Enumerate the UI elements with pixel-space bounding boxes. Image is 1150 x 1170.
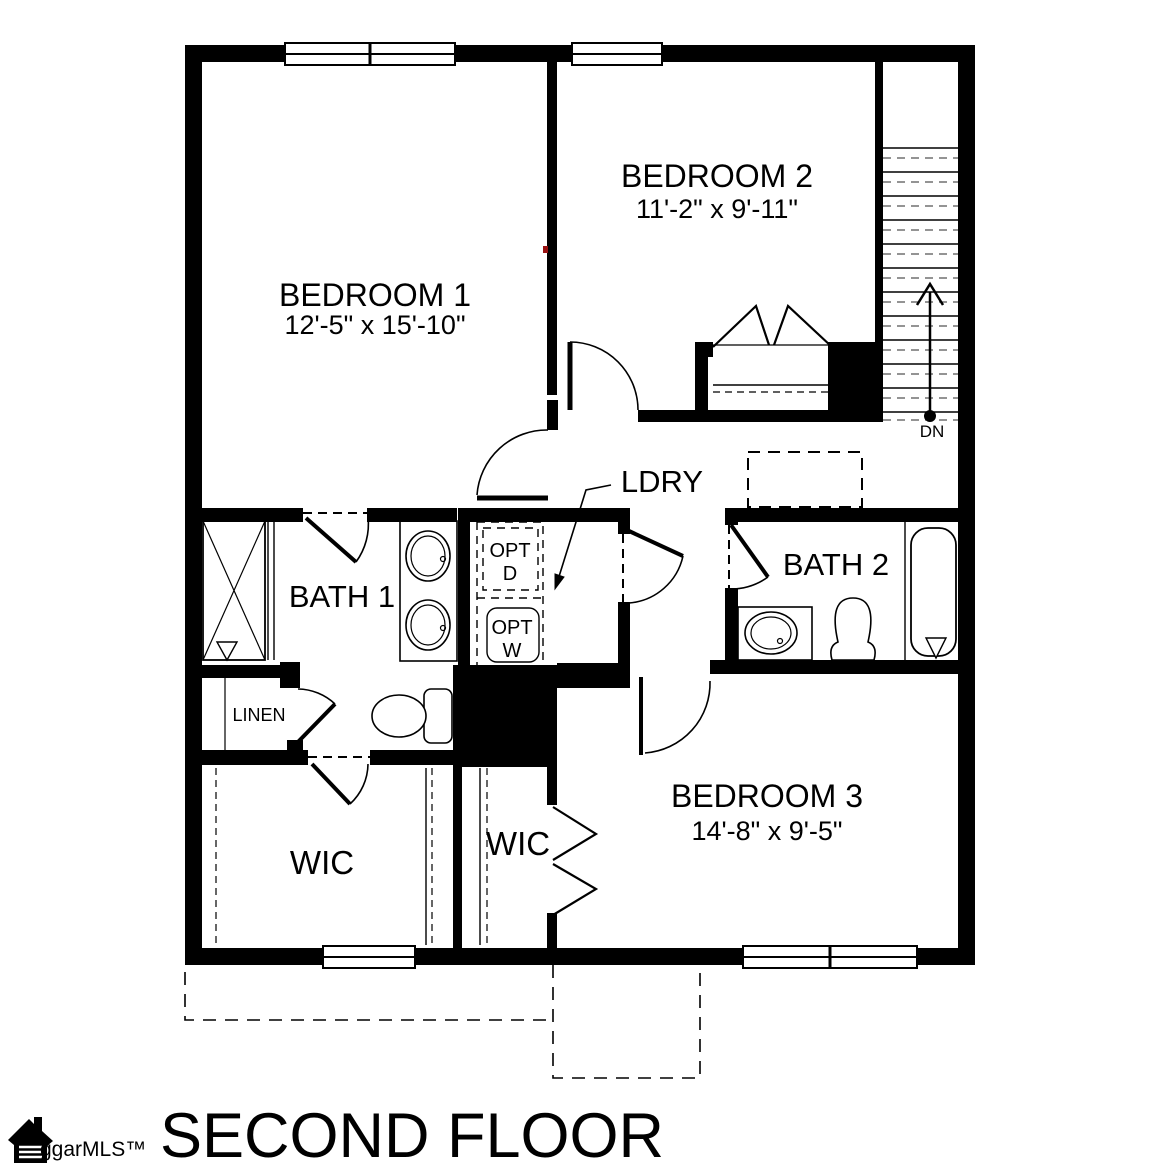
opt-washer-label-line1: OPT <box>491 617 532 639</box>
stair-direction-arrow <box>917 284 943 422</box>
bedroom2-dims: 11'-2" x 9'-11" <box>636 194 798 224</box>
bedroom2-door <box>570 342 638 410</box>
bath1-vanity <box>400 521 457 661</box>
bath1-label: BATH 1 <box>289 579 395 614</box>
bath2-tub <box>905 522 956 660</box>
bedroom3-door <box>641 677 710 755</box>
mls-watermark: ggarMLS™ <box>8 1117 146 1163</box>
wic-right-bifold <box>553 807 596 915</box>
mls-watermark-text: ggarMLS™ <box>40 1138 146 1161</box>
bedroom3-window <box>743 946 917 968</box>
staircase <box>883 148 958 422</box>
bedroom3-dims: 14'-8" x 9'-5" <box>691 816 842 846</box>
floor-plan-page: BEDROOM 1 12'-5" x 15'-10" BEDROOM 2 11'… <box>0 0 1150 1170</box>
wic-window <box>323 946 415 968</box>
ldry-leader-arrow <box>555 485 611 589</box>
wic-left-label: WIC <box>290 844 354 881</box>
walls <box>185 45 975 965</box>
laundry-door <box>629 531 683 603</box>
bedroom2-window <box>572 43 662 65</box>
opt-dryer-label-line2: D <box>503 563 517 585</box>
wic-right-label: WIC <box>486 825 550 862</box>
lower-floor-outline <box>185 965 700 1078</box>
bath2-label: BATH 2 <box>783 547 889 582</box>
bath2-toilet <box>831 598 875 660</box>
opt-washer-label-line2: W <box>503 640 522 662</box>
bath2-door <box>731 525 768 589</box>
bedroom1-window <box>285 43 455 65</box>
bath2-vanity <box>738 607 812 660</box>
attic-access <box>748 452 862 507</box>
red-marker <box>543 246 548 253</box>
bath1-door <box>306 517 368 562</box>
floor-plan-drawing: BEDROOM 1 12'-5" x 15'-10" BEDROOM 2 11'… <box>0 0 1150 1170</box>
wic-left-door <box>312 764 368 804</box>
linen-label: LINEN <box>232 705 285 725</box>
bedroom1-door <box>477 430 548 498</box>
bedroom1-label: BEDROOM 1 <box>279 277 471 313</box>
opt-dryer-label-line1: OPT <box>489 540 530 562</box>
bath1-toilet <box>372 689 452 743</box>
bedroom1-dims: 12'-5" x 15'-10" <box>284 310 465 340</box>
bedroom2-closet-bifold <box>713 306 832 347</box>
linen-door <box>296 689 335 744</box>
bedroom2-label: BEDROOM 2 <box>621 158 813 194</box>
bedroom3-label: BEDROOM 3 <box>671 778 863 814</box>
page-title: SECOND FLOOR <box>160 1101 664 1170</box>
bedroom2-closet-shelf <box>713 385 828 392</box>
bath1-shower <box>203 521 274 660</box>
laundry-label: LDRY <box>621 464 703 499</box>
stairs-down-label: DN <box>920 422 945 441</box>
